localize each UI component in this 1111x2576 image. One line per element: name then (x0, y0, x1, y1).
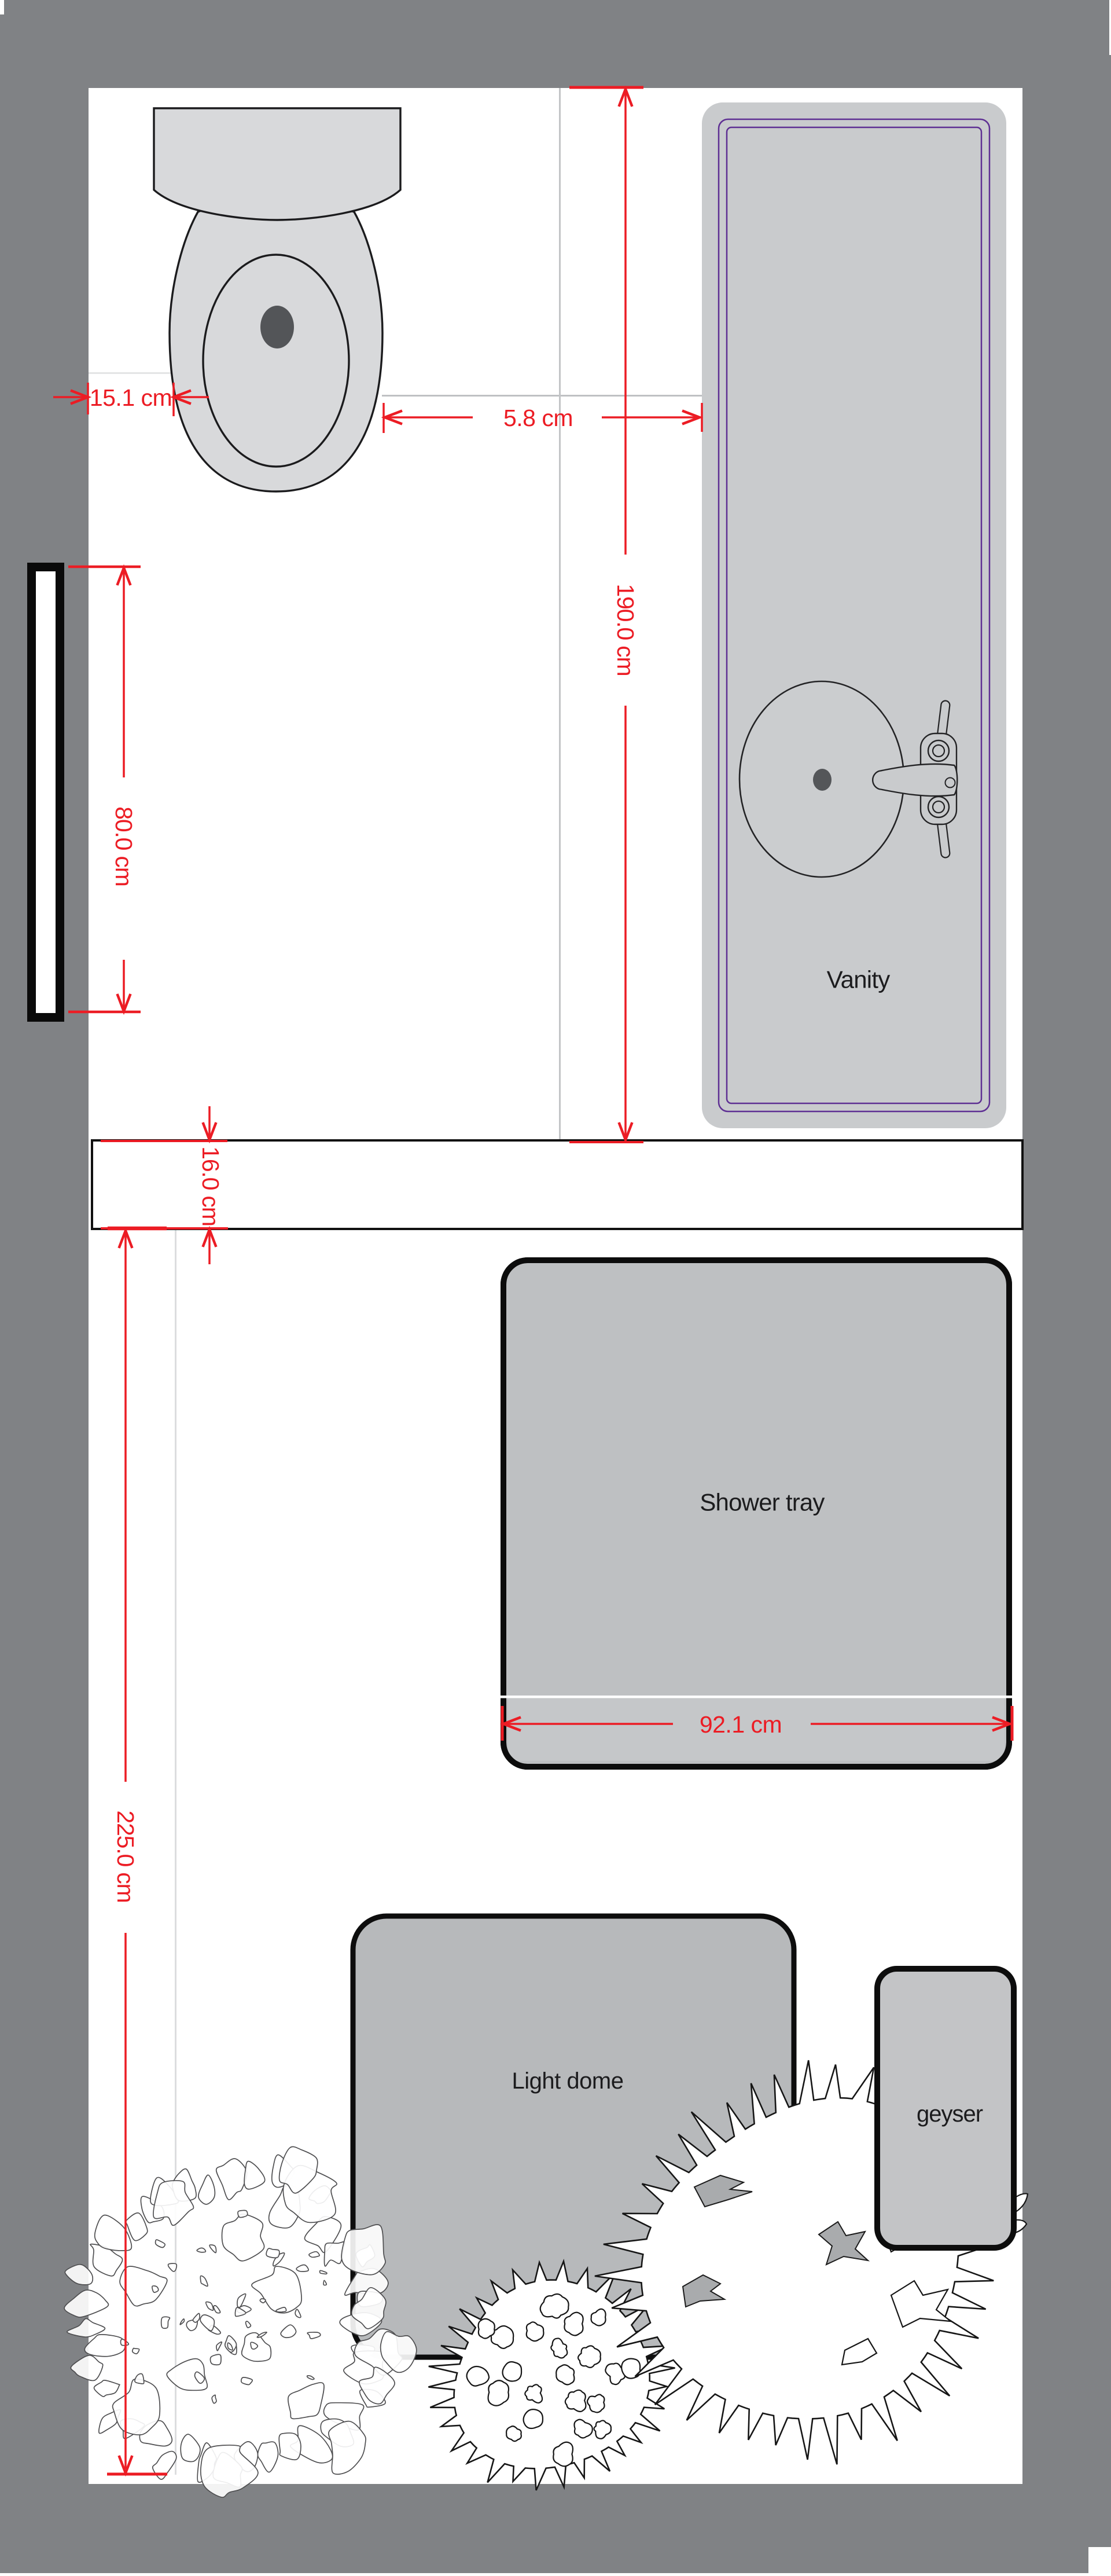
svg-text:Vanity: Vanity (827, 966, 891, 993)
svg-text:geyser: geyser (917, 2101, 983, 2127)
svg-text:16.0 cm: 16.0 cm (197, 1146, 224, 1225)
svg-text:190.0 cm: 190.0 cm (612, 584, 639, 676)
svg-text:5.8 cm: 5.8 cm (503, 405, 573, 431)
svg-text:Shower tray: Shower tray (700, 1489, 825, 1516)
svg-text:225.0 cm: 225.0 cm (112, 1810, 139, 1902)
svg-text:Light dome: Light dome (512, 2068, 624, 2094)
svg-text:15.1 cm: 15.1 cm (90, 384, 172, 411)
svg-text:92.1 cm: 92.1 cm (700, 1711, 782, 1738)
svg-text:80.0 cm: 80.0 cm (111, 806, 137, 886)
